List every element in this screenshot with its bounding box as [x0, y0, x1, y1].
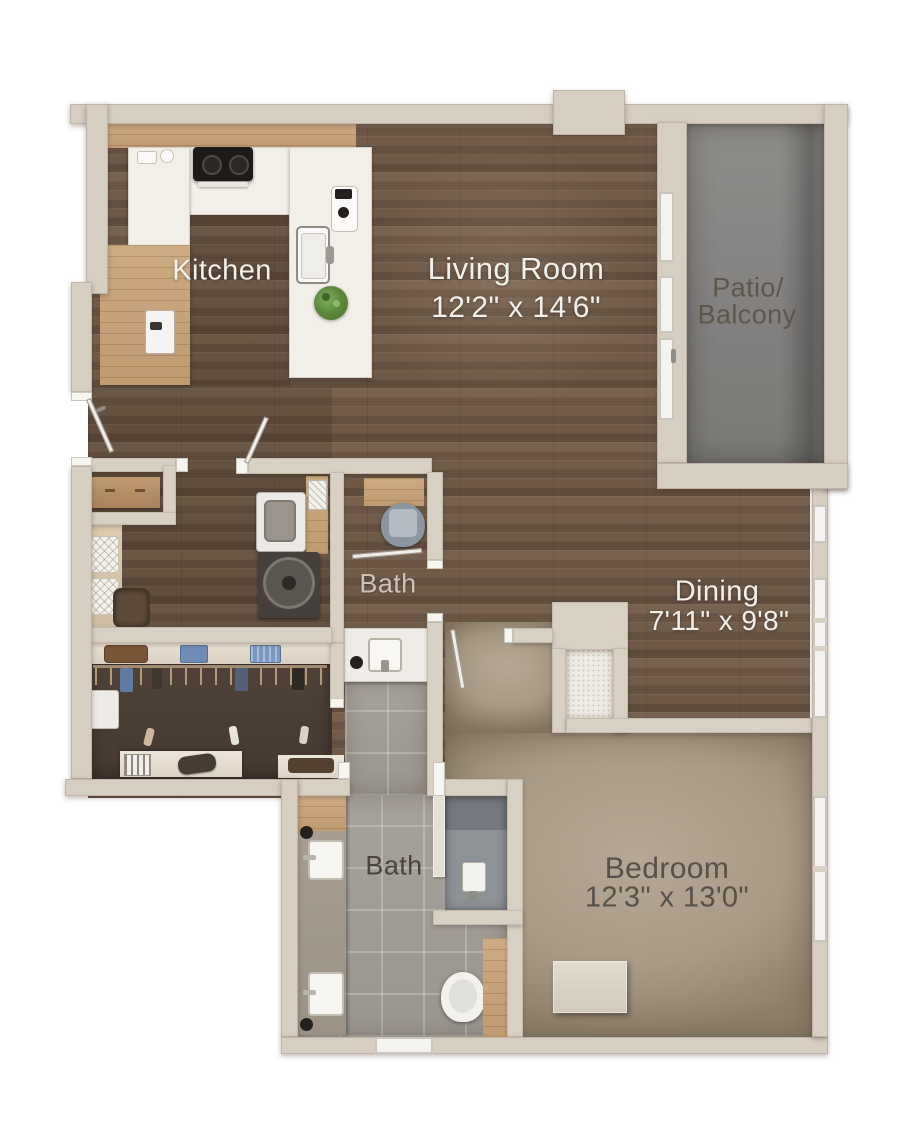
wall [297, 779, 350, 796]
folded-clothes-icon [180, 645, 208, 663]
hanging-garment-icon [292, 668, 304, 690]
door-jamb [427, 613, 443, 622]
storage-basket [113, 588, 150, 628]
wall [88, 512, 176, 525]
door-jamb [338, 762, 350, 779]
wall-exterior-top [70, 104, 848, 124]
shower-head-icon [462, 862, 486, 892]
plant-leaf-icon [333, 300, 340, 307]
wall [552, 648, 566, 733]
laundry-hamper [90, 690, 119, 729]
window-mullion [813, 646, 827, 651]
plant-leaf-icon [322, 293, 330, 301]
window-mullion [813, 618, 827, 623]
shower-glass-wall [433, 795, 445, 877]
cooktop-burner-icon [229, 155, 249, 175]
coffee-maker-dot [338, 207, 349, 218]
bath-corridor-floor [345, 680, 427, 796]
wall [552, 602, 628, 650]
label-living-room-dims: 12'2" x 14'6" [431, 291, 601, 325]
kitchen-prep-sink [145, 310, 175, 354]
soap-dispenser-icon [300, 1018, 313, 1031]
suitcase-icon [104, 645, 148, 663]
wall-patio-bottom [657, 463, 848, 489]
label-bath-upper: Bath [359, 569, 416, 600]
label-bedroom-dims: 12'3" x 13'0" [585, 882, 749, 915]
label-bath-lower: Bath [365, 851, 422, 882]
wall [330, 472, 344, 643]
label-dining: Dining [675, 576, 760, 609]
dryer-door [264, 500, 296, 542]
wall-exterior-left-lower [281, 779, 298, 1037]
kitchen-top-counter [106, 123, 356, 148]
door-jamb [71, 457, 92, 466]
door-jamb [504, 628, 513, 643]
door-jamb [176, 458, 188, 472]
label-balcony: Balcony [698, 300, 797, 331]
linen-nook-interior [566, 648, 613, 718]
wall [427, 472, 443, 560]
floor-plan: Kitchen Living Room 12'2" x 14'6" Patio/… [0, 0, 900, 1145]
wall [513, 628, 553, 643]
potted-plant [314, 286, 348, 320]
toilet-seat-icon [449, 979, 477, 1013]
label-living-room: Living Room [428, 251, 605, 287]
faucet-icon [303, 855, 316, 860]
dresser [553, 961, 627, 1013]
hanging-garment-icon [152, 668, 162, 689]
hanging-garment-icon [235, 668, 248, 691]
coffee-maker-top [335, 189, 352, 199]
toilet-lid-icon [389, 509, 417, 537]
wall [507, 779, 523, 1037]
wall-top-bump [553, 90, 625, 135]
wall-patio-right [824, 104, 848, 489]
dish-icon [137, 151, 157, 164]
wall-exterior-bottom [281, 1037, 828, 1054]
console-handle-icon [135, 489, 145, 492]
vanity-faucet-icon [381, 660, 389, 672]
wall [445, 779, 507, 796]
door-jamb [330, 698, 344, 708]
shower-head-dot-icon [469, 891, 477, 901]
kitchen-prep-faucet-icon [150, 322, 162, 330]
shoe-box-icon [124, 754, 151, 776]
wall [433, 910, 523, 925]
hanging-garment-icon [120, 668, 133, 692]
cooktop-handle [198, 182, 248, 187]
wall-exterior-left [71, 282, 92, 392]
console-table [92, 477, 160, 508]
soap-dispenser-icon [350, 656, 363, 669]
bag-icon [288, 758, 334, 773]
door-jamb [433, 762, 445, 796]
label-kitchen: Kitchen [172, 255, 272, 288]
wall [330, 643, 344, 700]
patio-sliding-door [659, 192, 674, 262]
laundry-basket-icon [308, 480, 327, 510]
door-jamb [427, 560, 443, 569]
soap-dispenser-icon [300, 826, 313, 839]
label-dining-dims: 7'11" x 9'8" [649, 605, 790, 637]
wc-shelf [364, 478, 424, 506]
console-handle-icon [105, 489, 115, 492]
bath-side-cabinet [483, 938, 507, 1037]
island-sink-basin [301, 233, 326, 279]
window-mullion [813, 866, 827, 872]
faucet-icon [303, 990, 316, 995]
wall-exterior-bottom-left [65, 779, 297, 796]
wall [566, 718, 812, 733]
patio-sliding-door [659, 276, 674, 333]
wall-exterior-left [86, 104, 108, 294]
ottoman-cushion [90, 536, 119, 573]
island-faucet-icon [326, 246, 334, 264]
wall [88, 627, 332, 643]
vanity-sink [308, 840, 344, 880]
bowl-icon [160, 149, 174, 163]
door-handle-icon [671, 349, 676, 363]
bath-window [375, 1037, 433, 1054]
dining-window [813, 505, 827, 543]
folded-clothes-icon [250, 645, 281, 663]
wall-exterior-left [71, 466, 92, 779]
cooktop-burner-icon [202, 155, 222, 175]
wall-exterior-right [812, 463, 828, 1037]
washer-center-icon [282, 576, 296, 590]
